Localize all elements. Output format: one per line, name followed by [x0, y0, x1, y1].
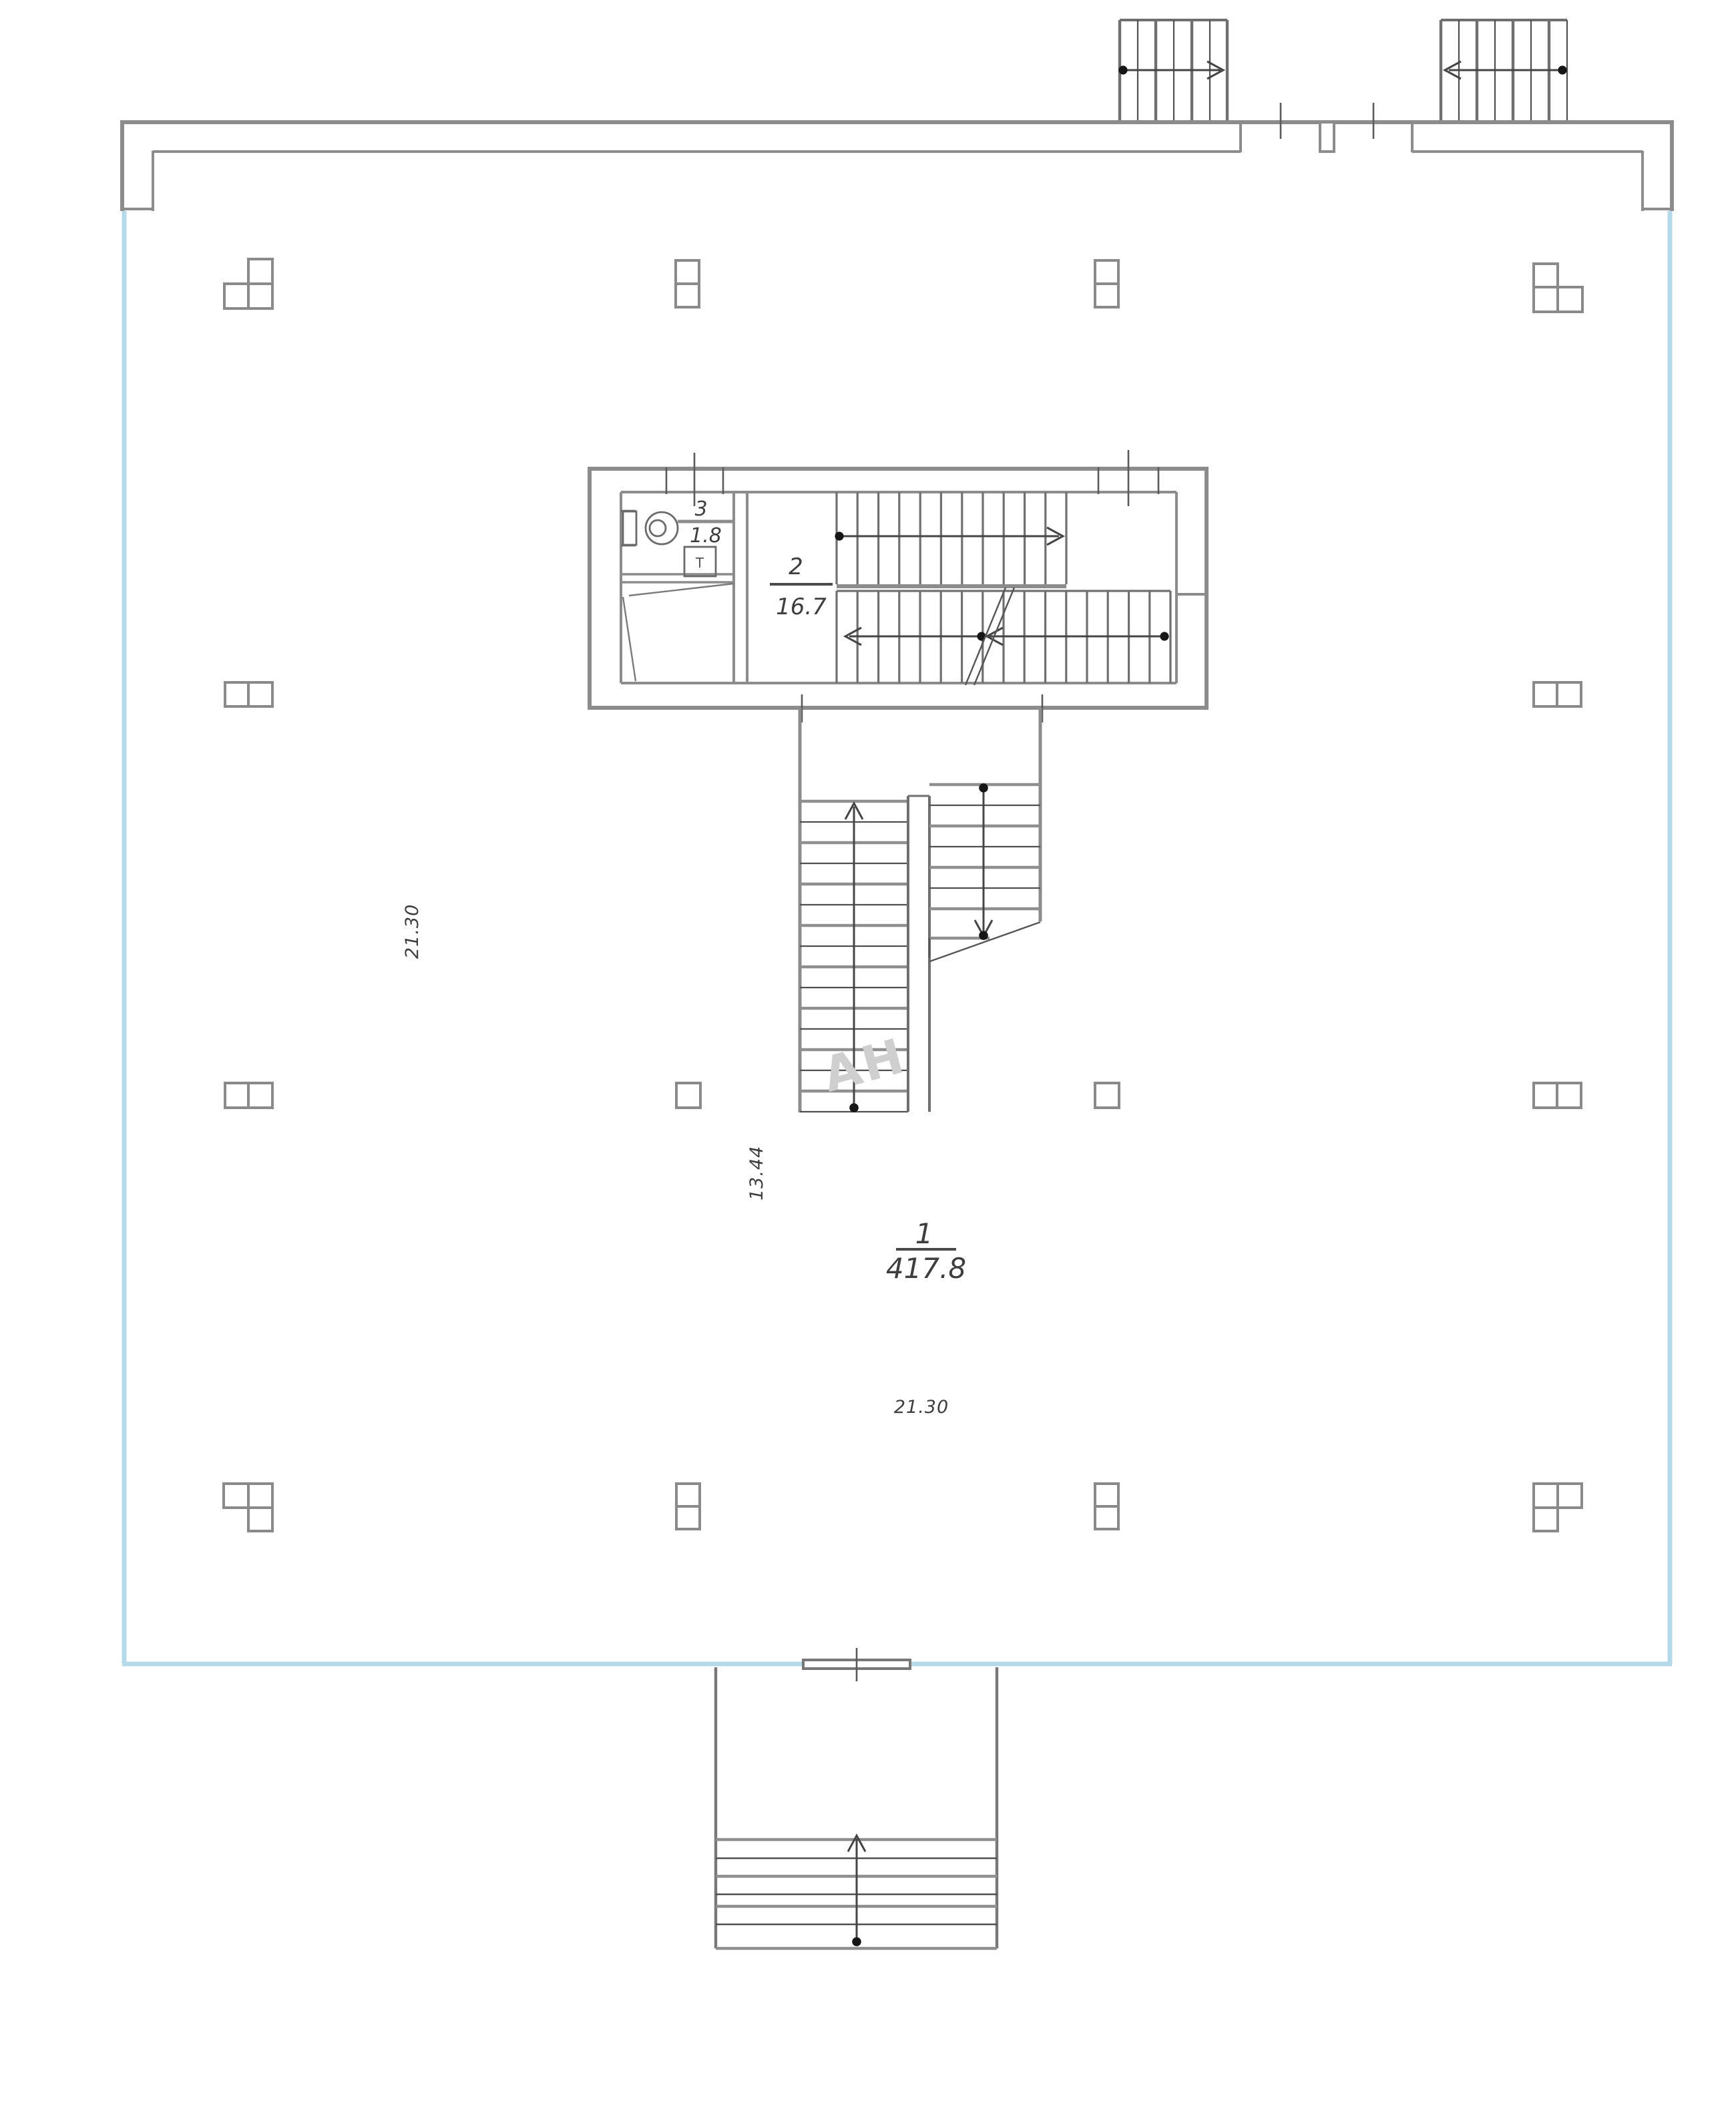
column-top-mid-2	[1095, 260, 1118, 307]
right-flight-treads-thin	[929, 805, 1040, 888]
middle-stringers	[908, 796, 929, 1112]
dim-stair-vertical: 13.44	[746, 1146, 767, 1201]
room1-number: 1	[915, 1217, 933, 1250]
arrow-start-dot	[1558, 65, 1566, 74]
sink-bowl-inner-icon	[650, 520, 666, 536]
upper-flight-arrow-dot	[835, 532, 843, 540]
column-bottom-left	[224, 1484, 272, 1531]
column-row3-right	[1534, 1083, 1581, 1108]
right-flight-cut-diagonal	[929, 922, 1040, 962]
equipment-label: T	[695, 555, 704, 571]
column-row3-mid-2	[1095, 1083, 1119, 1108]
up-arrow-dot	[849, 1103, 859, 1112]
floor-plan-sheet: АН	[0, 0, 1736, 2124]
floor-plan-drawing: АН	[0, 0, 1736, 2124]
under-stair-slope	[623, 584, 734, 681]
arrow-start-dot	[1118, 65, 1127, 74]
column-top-mid-1	[676, 260, 699, 307]
upper-flight-treads	[837, 492, 1066, 584]
top-left-exterior-stair	[1118, 20, 1227, 120]
room3-number: 3	[694, 497, 707, 521]
wc-bottom-wall	[621, 574, 734, 582]
top-left-notch	[120, 151, 1241, 211]
outer-side-walls-top	[122, 120, 1672, 211]
down-arrow-dot-bottom	[979, 931, 988, 940]
column-top-left	[224, 259, 272, 308]
porch-arrow-dot	[852, 1937, 861, 1946]
down-arrow-dot-top	[979, 783, 988, 793]
lower-flight-arrow-dot-right	[1160, 632, 1168, 640]
room2-number: 2	[789, 554, 803, 580]
column-mid-right	[1534, 682, 1581, 706]
column-bottom-mid-1	[676, 1484, 700, 1529]
dim-left-vertical: 21.30	[402, 904, 423, 959]
column-bottom-mid-2	[1095, 1484, 1118, 1529]
right-flight-treads-thick	[929, 785, 1040, 938]
bottom-entrance-porch	[716, 1648, 997, 1948]
column-row3-left	[225, 1083, 272, 1108]
room1-area: 417.8	[886, 1252, 966, 1285]
vestibule-door-post	[1320, 122, 1334, 152]
building-outline	[120, 120, 1674, 211]
column-bottom-right	[1534, 1484, 1582, 1531]
blue-perimeter	[122, 211, 1672, 1664]
divider-wall	[734, 492, 747, 683]
room2-area: 16.7	[776, 594, 827, 620]
stairwell-block	[590, 450, 1207, 722]
room3-area: 1.8	[690, 524, 722, 548]
column-mid-left	[225, 682, 272, 706]
sink-basin	[623, 511, 636, 545]
column-markers	[224, 259, 1582, 1531]
dim-bottom-horizontal: 21.30	[894, 1397, 949, 1418]
block-top-wall-ticks	[666, 450, 1158, 506]
column-top-right	[1534, 264, 1582, 312]
column-row3-mid-1	[676, 1083, 700, 1108]
top-right-exterior-stair	[1441, 20, 1567, 120]
top-right-notch	[1412, 151, 1674, 211]
